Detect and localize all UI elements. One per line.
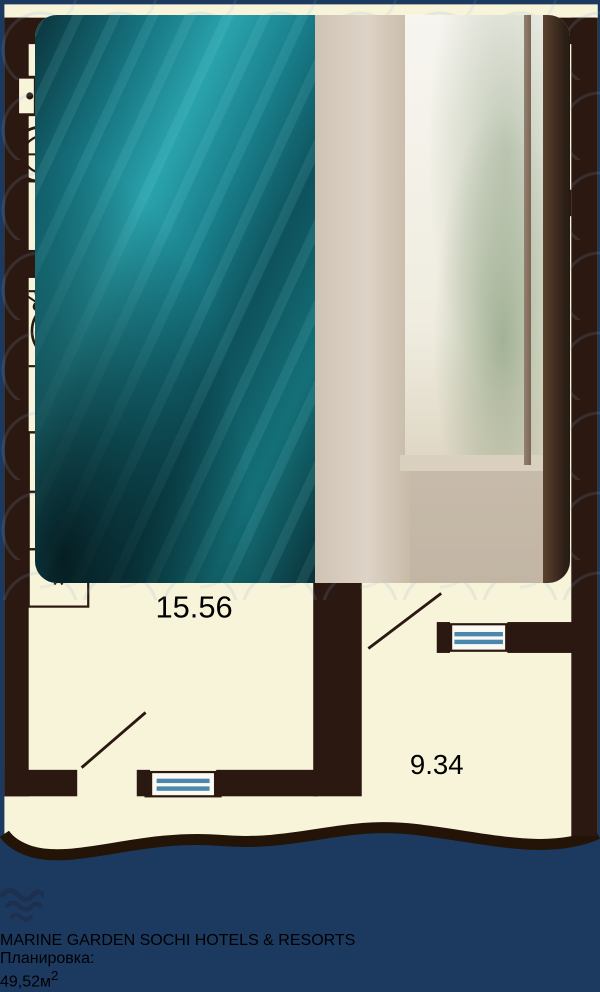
interior-photo — [35, 15, 570, 583]
brand-tagline: HOTELS & RESORTS — [195, 932, 356, 949]
logo-wave-icon — [0, 887, 44, 927]
wood-floor — [175, 445, 570, 583]
brand-logo-card: MARINE GARDEN SOCHI HOTELS & RESORTS — [0, 887, 600, 950]
window-icon — [446, 624, 512, 650]
room-area-terrace: 9.34 — [410, 749, 464, 780]
brand-line1: MARINE — [0, 932, 62, 949]
area-number: 49,52 — [0, 974, 40, 991]
brand-name: MARINE GARDEN SOCHI HOTELS & RESORTS — [0, 932, 600, 950]
brand-line2: GARDEN SOCHI — [67, 932, 191, 949]
window-frame — [524, 15, 531, 465]
footer-area-block: Планировка: 49,52м2 — [0, 950, 600, 991]
area-superscript: 2 — [51, 968, 58, 983]
total-area-value: 49,52м2 — [0, 968, 600, 991]
layout-label: Планировка: — [0, 950, 600, 968]
area-unit: м — [40, 974, 51, 991]
window-icon — [146, 772, 221, 796]
